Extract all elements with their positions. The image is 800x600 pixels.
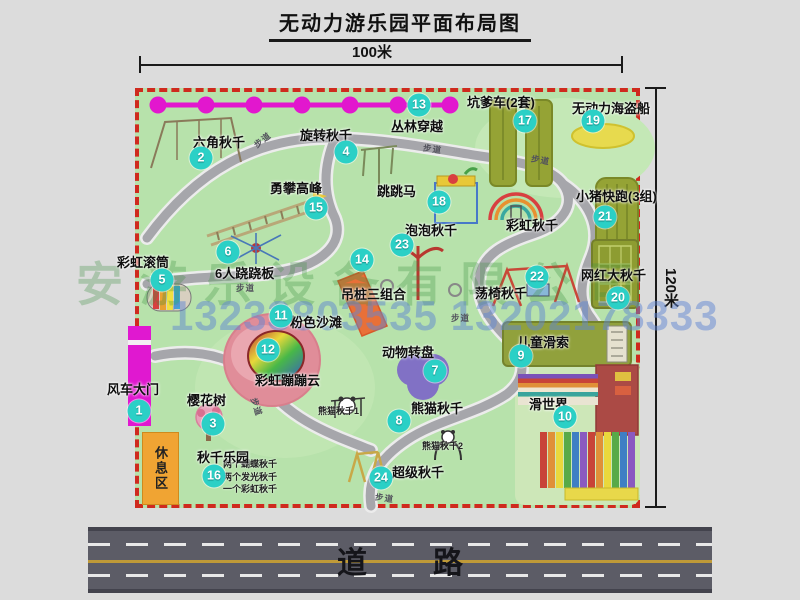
- attraction-label-8: 熊猫秋千: [411, 398, 463, 417]
- attraction-label-21: 小猪快跑(3组): [576, 186, 657, 205]
- attraction-badge-3: 3: [202, 413, 225, 436]
- footpath-label-1: 步道: [422, 142, 443, 157]
- attraction-label-16: 秋千乐园: [197, 447, 249, 466]
- attraction-label-18: 跳跳马: [377, 181, 416, 200]
- page-title-wrap: 无动力游乐园平面布局图: [0, 7, 800, 42]
- attraction-label-14: 吊桩三组合: [341, 284, 406, 303]
- map-labels-layer: 风车大门1六角秋千2樱花树3旋转秋千4彩虹滚筒56人跷跷板6动物转盘7熊猫秋千8…: [135, 88, 640, 508]
- attraction-badge-15: 15: [305, 197, 328, 220]
- attraction-label-15: 勇攀高峰: [270, 178, 322, 197]
- park-map-inner: 休息区 两个蝴蝶秋千两个发光秋千一个彩虹秋千 风车大门1六角秋千2樱花树3旋转秋…: [135, 88, 640, 508]
- attraction-badge-24: 24: [370, 467, 393, 490]
- attraction-badge-6: 6: [217, 241, 240, 264]
- attraction-badge-14: 14: [351, 249, 374, 272]
- attraction-badge-10: 10: [554, 406, 577, 429]
- attraction-badge-8: 8: [388, 410, 411, 433]
- height-dimension-tick-top: [645, 87, 666, 89]
- attraction-badge-20: 20: [607, 287, 630, 310]
- attraction-badge-5: 5: [151, 269, 174, 292]
- attraction-label-17: 坑爹车(2套): [467, 92, 535, 111]
- footpath-label-5: 步道: [451, 312, 470, 324]
- attraction-label-6: 6人跷跷板: [215, 263, 274, 282]
- attraction-badge-12: 12: [257, 339, 280, 362]
- extra-label-0: 彩虹秋千: [506, 215, 558, 234]
- attraction-badge-11: 11: [270, 305, 293, 328]
- attraction-label-22: 荡椅秋千: [475, 283, 527, 302]
- attraction-badge-2: 2: [190, 147, 213, 170]
- attraction-badge-4: 4: [335, 141, 358, 164]
- road-label: 道路: [88, 531, 712, 589]
- attraction-badge-22: 22: [526, 266, 549, 289]
- footpath-label-2: 步道: [530, 152, 551, 167]
- attraction-badge-19: 19: [582, 110, 605, 133]
- extra-label-2: 熊猫秋千2: [422, 439, 463, 452]
- attraction-label-12: 彩虹蹦蹦云: [255, 370, 320, 389]
- height-dimension-tick-bottom: [645, 506, 666, 508]
- width-dimension-line: [140, 64, 623, 66]
- width-dimension-tick-left: [139, 56, 141, 73]
- width-dimension-label: 100米: [352, 41, 392, 62]
- attraction-label-7: 动物转盘: [382, 342, 434, 361]
- park-map: 休息区 两个蝴蝶秋千两个发光秋千一个彩虹秋千 风车大门1六角秋千2樱花树3旋转秋…: [135, 88, 640, 508]
- extra-label-1: 熊猫秋千1: [318, 404, 359, 417]
- attraction-badge-23: 23: [391, 234, 414, 257]
- page-title: 无动力游乐园平面布局图: [269, 7, 531, 42]
- attraction-label-11: 粉色沙滩: [290, 312, 342, 331]
- attraction-badge-21: 21: [594, 206, 617, 229]
- attraction-badge-18: 18: [428, 191, 451, 214]
- footpath-label-4: 步道: [248, 396, 265, 418]
- attraction-label-24: 超级秋千: [392, 462, 444, 481]
- attraction-label-1: 风车大门: [107, 379, 159, 398]
- attraction-label-13: 丛林穿越: [391, 116, 443, 135]
- attraction-label-3: 樱花树: [187, 390, 226, 409]
- screenshot-root: 无动力游乐园平面布局图 100米 120米: [0, 0, 800, 600]
- attraction-badge-9: 9: [510, 345, 533, 368]
- attraction-label-20: 网红大秋千: [581, 265, 646, 284]
- attraction-badge-16: 16: [203, 465, 226, 488]
- footpath-label-6: 步道: [374, 491, 395, 506]
- footpath-label-3: 步道: [236, 282, 255, 294]
- attraction-badge-1: 1: [128, 400, 151, 423]
- attraction-badge-17: 17: [514, 110, 537, 133]
- road: 道路: [88, 527, 712, 593]
- width-dimension-tick-right: [621, 56, 623, 73]
- attraction-badge-7: 7: [424, 360, 447, 383]
- attraction-label-23: 泡泡秋千: [405, 220, 457, 239]
- attraction-badge-13: 13: [408, 94, 431, 117]
- footpath-label-0: 步道: [251, 129, 273, 150]
